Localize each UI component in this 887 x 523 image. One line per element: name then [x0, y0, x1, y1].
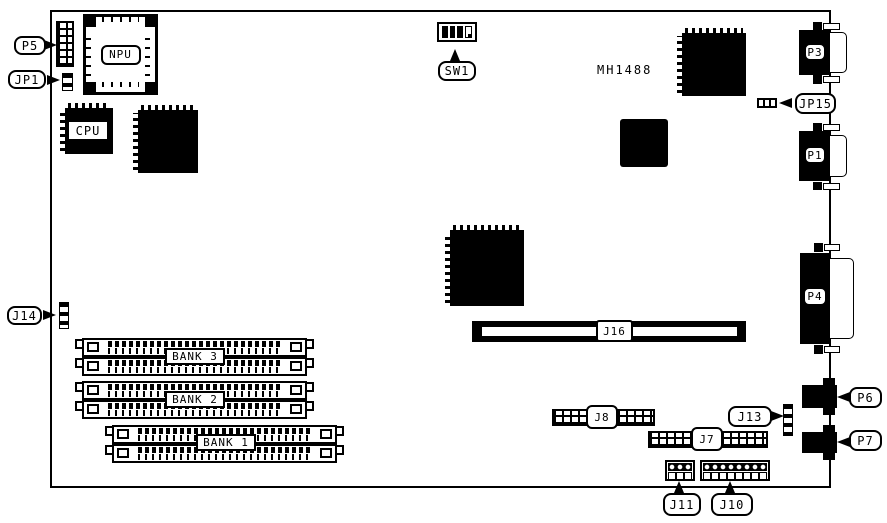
simm-tab — [305, 358, 314, 368]
callout-jp15-pointer — [779, 98, 792, 108]
callout-j14: J14 — [7, 306, 42, 325]
simm-tab — [335, 426, 344, 436]
callout-p7: P7 — [849, 430, 882, 451]
j16-label: J16 — [596, 320, 633, 342]
p3-dsub-shell — [829, 32, 847, 73]
simm-clip — [320, 448, 332, 458]
p7-key-top — [823, 425, 835, 432]
connector-p6 — [802, 385, 837, 408]
motherboard-diagram: P5 JP1 NPU CPU SW1 MH1488 JP15 P3 — [0, 0, 887, 523]
chip-unlabeled-b — [677, 28, 751, 101]
bank1-label: BANK 1 — [196, 434, 256, 451]
chip-unlabeled-d — [445, 225, 529, 311]
simm-tab — [305, 339, 314, 349]
simm-tab — [105, 445, 114, 455]
socket-corner — [145, 82, 156, 93]
connector-p5 — [56, 21, 74, 67]
connector-p7 — [802, 432, 837, 453]
sw1-switch-2 — [450, 26, 456, 38]
simm-clip — [290, 361, 302, 371]
p7-key-bottom — [823, 453, 835, 460]
simm-clip — [290, 385, 302, 395]
p1-mount-top — [813, 123, 822, 131]
callout-jp1-pointer — [47, 75, 60, 85]
simm-clip — [117, 429, 129, 439]
p6-key-bottom — [823, 408, 835, 415]
socket-corner — [85, 82, 96, 93]
p1-dsub-shell — [829, 135, 847, 177]
callout-j11-pointer — [674, 481, 684, 493]
callout-j13: J13 — [728, 406, 772, 427]
p3-screw-bottom — [823, 76, 840, 83]
simm-tab — [105, 426, 114, 436]
callout-j14-pointer — [43, 310, 56, 320]
npu-label: NPU — [101, 45, 141, 65]
socket-corner — [85, 16, 96, 27]
p4-mount-top — [814, 243, 823, 252]
p1-mount-bottom — [813, 182, 822, 190]
callout-jp15: JP15 — [795, 93, 836, 114]
j7-label: J7 — [691, 427, 723, 451]
callout-p5: P5 — [14, 36, 46, 55]
sw1-switch-4 — [465, 26, 473, 38]
p3-screw-top — [823, 23, 840, 30]
p4-label: P4 — [803, 287, 827, 306]
simm-tab — [75, 358, 84, 368]
callout-j10: J10 — [711, 493, 753, 516]
p4-mount-bottom — [814, 345, 823, 354]
p4-screw-bottom — [824, 346, 840, 353]
chip-unlabeled-a — [133, 105, 203, 178]
simm-tab — [335, 445, 344, 455]
callout-p6: P6 — [849, 387, 882, 408]
jumper-jp1 — [62, 73, 73, 91]
p1-screw-bottom — [823, 183, 840, 190]
simm-clip — [320, 429, 332, 439]
silkscreen-mh1488: MH1488 — [597, 64, 652, 76]
p1-screw-top — [823, 124, 840, 131]
p4-dsub-shell — [829, 258, 854, 339]
callout-j11: J11 — [663, 493, 701, 516]
j11-pins — [668, 463, 692, 471]
socket-corner — [145, 16, 156, 27]
simm-clip — [87, 342, 99, 352]
simm-tab — [75, 382, 84, 392]
bank3-label: BANK 3 — [165, 348, 225, 365]
simm-tab — [305, 382, 314, 392]
simm-clip — [87, 361, 99, 371]
simm-clip — [117, 448, 129, 458]
p3-mount-bottom — [813, 75, 822, 84]
connector-j11 — [665, 460, 695, 481]
simm-clip — [290, 404, 302, 414]
cpu-chip: CPU — [60, 103, 118, 159]
simm-clip — [87, 404, 99, 414]
sw1-switch-1 — [442, 26, 448, 38]
p1-label: P1 — [804, 146, 826, 164]
callout-j13-pointer — [771, 411, 784, 421]
dip-switch-sw1 — [437, 22, 477, 42]
sw1-switch-3 — [457, 26, 463, 38]
p4-screw-top — [824, 244, 840, 251]
j10-pins — [703, 463, 767, 471]
cpu-label: CPU — [69, 122, 107, 139]
simm-clip — [290, 342, 302, 352]
jumper-jp15 — [757, 98, 777, 108]
chip-unlabeled-c — [620, 119, 668, 167]
npu-socket: NPU — [83, 14, 158, 95]
simm-tab — [75, 339, 84, 349]
connector-j10 — [700, 460, 770, 481]
callout-sw1: SW1 — [438, 61, 476, 81]
jumper-j13 — [783, 404, 793, 436]
callout-j10-pointer — [725, 481, 735, 493]
simm-tab — [305, 401, 314, 411]
bank2-label: BANK 2 — [165, 391, 225, 408]
jumper-j14 — [59, 302, 69, 329]
simm-tab — [75, 401, 84, 411]
j10-holes — [703, 472, 767, 480]
callout-sw1-pointer — [450, 49, 460, 61]
callout-p5-pointer — [44, 40, 57, 50]
j8-label: J8 — [586, 405, 618, 429]
callout-jp1: JP1 — [8, 70, 46, 89]
p6-key-top — [823, 378, 835, 385]
j11-holes — [668, 472, 692, 480]
simm-clip — [87, 385, 99, 395]
p3-label: P3 — [804, 43, 826, 61]
